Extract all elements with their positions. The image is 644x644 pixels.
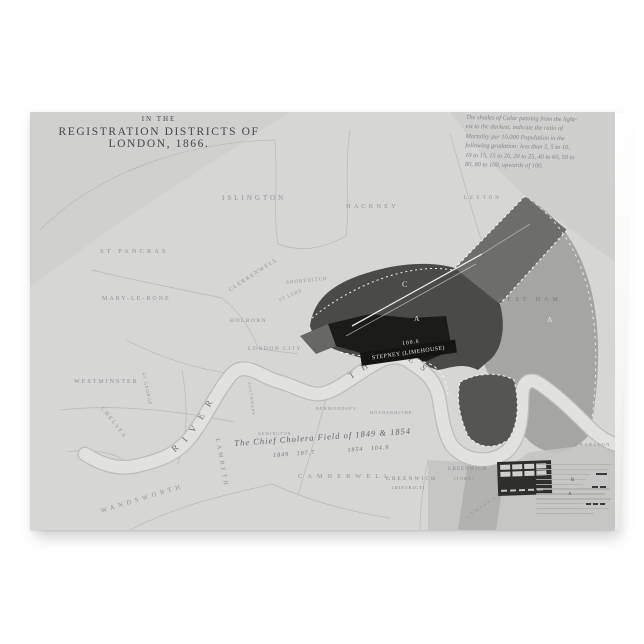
fine-print-line — [536, 513, 594, 514]
card-page-edge — [615, 113, 632, 530]
fine-print-line — [536, 484, 583, 485]
fine-print-line — [536, 474, 590, 475]
key-tick — [501, 489, 507, 492]
marker-a-east-end: A — [414, 314, 419, 323]
district-label-greenwich-district2: (DISTRICT) — [392, 485, 425, 490]
river-name-river: RIVER — [170, 391, 219, 454]
key-swatch — [500, 465, 510, 470]
district-label-greenwich-town: GREENWICH — [448, 467, 487, 472]
key-tick — [528, 488, 534, 491]
product-photo-stage: RIVER THAMES IN THE REGISTRATION DISTRIC… — [0, 0, 644, 644]
marker-a-west-ham: A — [547, 315, 552, 324]
district-label-marylebone: MARY-LE-BONE — [102, 296, 171, 302]
map-title-line1: IN THE — [44, 115, 274, 123]
legend-note: The shades of Color passing from the lig… — [465, 113, 615, 173]
key-tick — [510, 489, 516, 492]
district-label-west-ham: WEST HAM — [498, 297, 562, 303]
district-label-rotherhithe: ROTHERHITHE — [370, 410, 413, 415]
marker-c: C — [402, 280, 407, 289]
district-label-camberwell: CAMBERWELL — [298, 473, 393, 480]
line-style-dashed — [592, 486, 606, 488]
district-label-hackney: HACKNEY — [346, 203, 399, 210]
line-style-dotted — [586, 503, 605, 505]
key-letter-a: A — [568, 492, 572, 497]
district-label-greenwich-town2: (TOWN) — [454, 476, 475, 481]
key-swatch — [512, 471, 522, 476]
district-label-holborn: HOLBORN — [230, 318, 267, 324]
key-swatch — [500, 472, 510, 477]
district-label-london-city: LONDON CITY — [248, 346, 302, 352]
fine-print-line — [536, 498, 611, 499]
region-isle-of-dogs — [458, 374, 517, 446]
map-title-line2: REGISTRATION DISTRICTS OF LONDON, 1866. — [44, 126, 274, 150]
district-label-st-pancras: ST PANCRAS — [100, 248, 168, 255]
fine-print-line — [536, 488, 610, 489]
key-swatch — [524, 471, 534, 476]
fine-print-line — [536, 464, 612, 465]
fine-print-line — [536, 469, 608, 470]
fine-print-line — [536, 508, 609, 509]
district-label-islington: ISLINGTON — [222, 194, 286, 202]
line-style-solid — [596, 473, 607, 475]
district-label-westminster: WESTMINSTER — [74, 379, 139, 385]
greeting-card: RIVER THAMES IN THE REGISTRATION DISTRIC… — [30, 112, 615, 530]
district-label-bermondsey: BERMONDSEY — [316, 406, 357, 411]
map-title: IN THE REGISTRATION DISTRICTS OF LONDON,… — [44, 115, 274, 150]
fine-print-line — [536, 479, 586, 480]
district-label-charlton: CHARLTON — [575, 442, 611, 447]
key-tick — [519, 489, 525, 492]
key-swatch — [512, 464, 522, 469]
key-letter-b: B — [571, 478, 574, 483]
key-swatch — [524, 464, 534, 469]
district-label-leyton: LEYTON — [464, 196, 502, 201]
district-label-greenwich-district: GREENWICH — [386, 476, 437, 482]
